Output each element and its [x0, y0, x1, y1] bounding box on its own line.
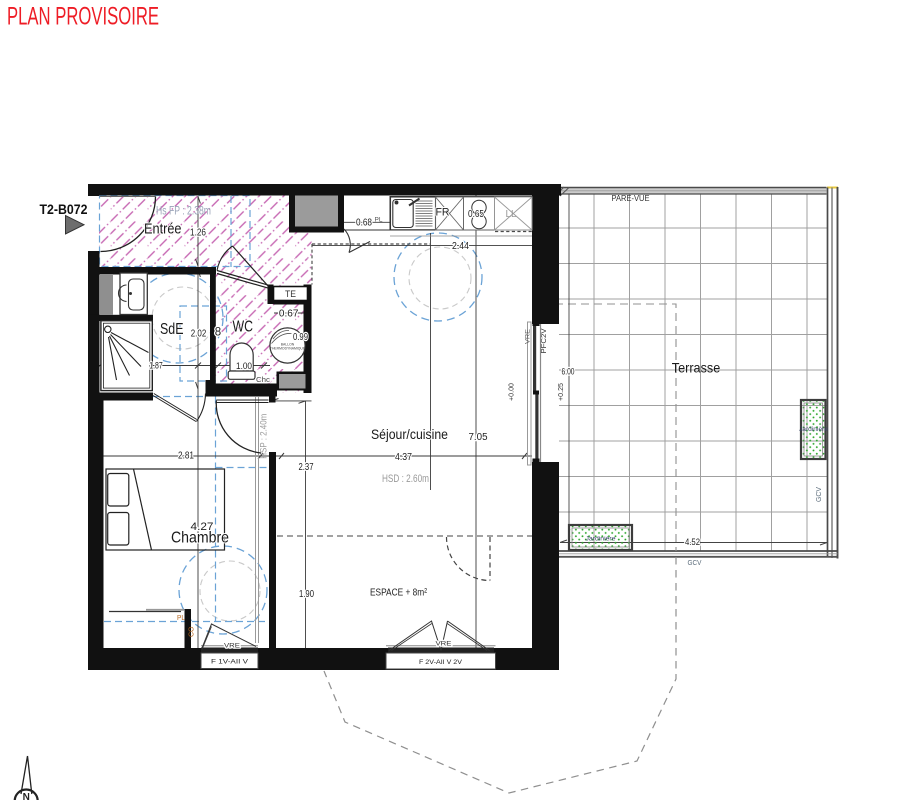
svg-text:N: N	[23, 792, 30, 800]
svg-text:Terrasse: Terrasse	[672, 360, 721, 376]
svg-text:Hs FP : 2.38m: Hs FP : 2.38m	[156, 206, 211, 218]
svg-text:1.26: 1.26	[190, 228, 206, 239]
svg-text:1.00: 1.00	[236, 361, 252, 372]
svg-text:VRE: VRE	[436, 641, 453, 648]
svg-text:PL: PL	[177, 615, 185, 622]
svg-text:HSP : 2.40m: HSP : 2.40m	[259, 414, 269, 459]
svg-text:ESPACE + 8m²: ESPACE + 8m²	[370, 587, 427, 599]
svg-text:2.37: 2.37	[299, 462, 314, 473]
svg-text:1.87: 1.87	[149, 361, 163, 371]
svg-text:4.52: 4.52	[685, 537, 700, 547]
svg-text:CO: CO	[189, 626, 196, 637]
svg-text:HSD : 2.60m: HSD : 2.60m	[382, 473, 429, 485]
svg-text:PLAN PROVISOIRE: PLAN PROVISOIRE	[7, 3, 159, 31]
svg-text:2.02: 2.02	[191, 329, 207, 340]
svg-text:1.90: 1.90	[299, 589, 314, 600]
svg-text:6.00: 6.00	[562, 367, 575, 377]
svg-text:7.05: 7.05	[469, 432, 488, 443]
svg-text:F 2V-AII V 2V: F 2V-AII V 2V	[419, 659, 463, 666]
svg-text:2.81: 2.81	[178, 451, 194, 462]
svg-text:PFC2V: PFC2V	[539, 329, 548, 354]
svg-text:SdE: SdE	[160, 321, 184, 338]
svg-text:FR: FR	[436, 207, 450, 219]
svg-text:LL: LL	[506, 209, 517, 220]
svg-text:GCV: GCV	[688, 558, 702, 567]
svg-text:VRE: VRE	[526, 329, 532, 344]
svg-text:0.68: 0.68	[356, 218, 372, 229]
svg-text:Jardinière: Jardinière	[586, 536, 616, 543]
svg-text:F 1V-AII V: F 1V-AII V	[211, 659, 249, 666]
svg-text:Séjour/cuisine: Séjour/cuisine	[371, 426, 448, 442]
svg-text:GCV: GCV	[814, 487, 823, 502]
svg-text:WC: WC	[233, 319, 254, 336]
svg-text:TE: TE	[285, 289, 296, 299]
svg-text:T2-B072: T2-B072	[40, 201, 88, 217]
svg-text:THERMODYNAMIQUE: THERMODYNAMIQUE	[270, 347, 306, 351]
svg-text:+0.25: +0.25	[558, 383, 565, 401]
svg-text:Entrée: Entrée	[144, 221, 182, 238]
svg-text:0.67: 0.67	[279, 309, 299, 320]
svg-text:2.44: 2.44	[452, 241, 469, 252]
svg-text:Jardinière: Jardinière	[799, 426, 828, 433]
svg-text:8: 8	[215, 327, 221, 339]
svg-text:VRE: VRE	[224, 643, 241, 650]
svg-text:0.65: 0.65	[468, 209, 484, 220]
svg-text:PARE-VUE: PARE-VUE	[612, 194, 650, 203]
svg-text:0.99: 0.99	[293, 332, 308, 343]
svg-text:PL: PL	[375, 217, 383, 224]
svg-text:+0.00: +0.00	[509, 383, 516, 401]
svg-text:4.37: 4.37	[395, 452, 412, 463]
svg-text:Chambre: Chambre	[171, 530, 229, 547]
svg-text:Chc: Chc	[256, 375, 270, 384]
